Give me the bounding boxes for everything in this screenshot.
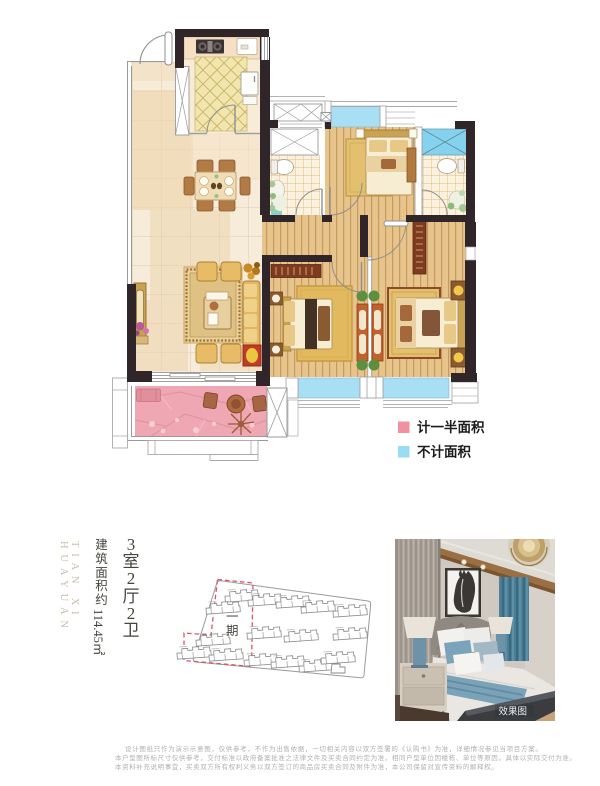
svg-text:计一半面积: 计一半面积 xyxy=(417,419,485,435)
svg-text:期: 期 xyxy=(226,624,239,638)
svg-text:效果图: 效果图 xyxy=(499,706,528,718)
svg-text:一: 一 xyxy=(226,610,239,624)
svg-text:不计面积: 不计面积 xyxy=(417,444,471,460)
